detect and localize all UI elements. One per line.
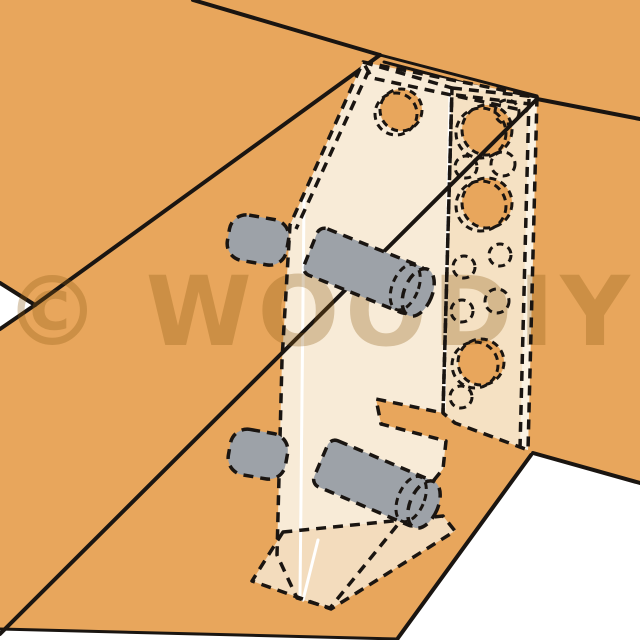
woodworking-bracket-illustration: © WOODIY <box>0 0 640 640</box>
illustration-stage: © WOODIY <box>0 0 640 640</box>
